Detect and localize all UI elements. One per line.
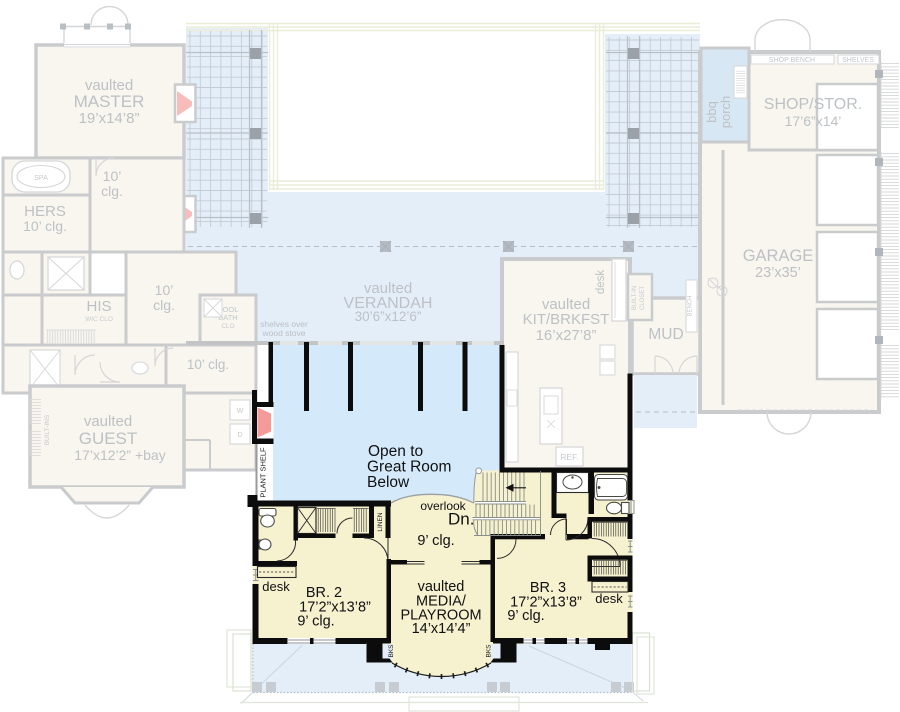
- svg-text:SPA: SPA: [34, 175, 48, 182]
- svg-text:KIT/BRKFST: KIT/BRKFST: [523, 311, 610, 328]
- svg-text:BKS: BKS: [388, 644, 395, 658]
- svg-text:10’ clg.: 10’ clg.: [187, 357, 229, 372]
- svg-text:desk: desk: [595, 591, 623, 606]
- svg-text:10’ clg.: 10’ clg.: [23, 218, 67, 234]
- svg-text:BUILT-INS: BUILT-INS: [44, 414, 51, 445]
- svg-text:MASTER: MASTER: [74, 92, 145, 111]
- svg-text:WIC CLO: WIC CLO: [85, 316, 113, 323]
- svg-text:SHOP BENCH: SHOP BENCH: [769, 57, 815, 64]
- svg-text:bbq: bbq: [704, 101, 719, 123]
- svg-text:wood stove: wood stove: [262, 328, 306, 338]
- svg-text:HIS: HIS: [86, 298, 111, 315]
- svg-text:Below: Below: [367, 474, 410, 491]
- svg-text:REF.: REF.: [560, 452, 578, 462]
- svg-text:17’x12’2” +bay: 17’x12’2” +bay: [74, 447, 165, 463]
- svg-text:BUILT-IN: BUILT-IN: [632, 286, 638, 310]
- svg-text:Great Room: Great Room: [367, 459, 451, 476]
- svg-text:9’ clg.: 9’ clg.: [507, 608, 544, 624]
- svg-text:LINEN: LINEN: [377, 512, 384, 531]
- svg-text:CLOSET: CLOSET: [640, 286, 646, 310]
- svg-text:17’6”x14’: 17’6”x14’: [785, 113, 842, 129]
- svg-text:14’x14’4”: 14’x14’4”: [412, 621, 471, 637]
- svg-text:porch: porch: [718, 96, 733, 129]
- svg-text:30’6”x12’6”: 30’6”x12’6”: [355, 309, 422, 324]
- svg-text:vaulted: vaulted: [84, 413, 132, 430]
- svg-text:CLO: CLO: [221, 323, 234, 330]
- svg-text:23’x35’: 23’x35’: [755, 265, 801, 281]
- svg-text:10’: 10’: [103, 168, 122, 184]
- svg-text:W: W: [237, 408, 244, 415]
- svg-text:BENCH: BENCH: [688, 295, 694, 316]
- svg-text:desk: desk: [595, 270, 607, 295]
- svg-text:16’x27’8”: 16’x27’8”: [536, 327, 597, 344]
- svg-text:D: D: [237, 432, 242, 439]
- svg-text:clg.: clg.: [153, 297, 175, 313]
- svg-text:Open to: Open to: [368, 443, 423, 460]
- svg-text:BKS: BKS: [486, 644, 493, 658]
- svg-text:Dn.: Dn.: [448, 510, 474, 529]
- svg-text:SHELVES: SHELVES: [842, 57, 874, 64]
- svg-text:SHOP/STOR.: SHOP/STOR.: [764, 96, 862, 113]
- svg-text:MUD: MUD: [648, 326, 683, 343]
- svg-text:clg.: clg.: [101, 183, 123, 199]
- svg-text:9’ clg.: 9’ clg.: [417, 533, 454, 549]
- svg-text:PLANT SHELF: PLANT SHELF: [259, 447, 268, 498]
- svg-text:desk: desk: [262, 579, 290, 594]
- svg-text:GUEST: GUEST: [79, 429, 138, 448]
- svg-text:19’x14’8”: 19’x14’8”: [79, 110, 140, 127]
- svg-text:GARAGE: GARAGE: [743, 247, 814, 265]
- svg-text:10’: 10’: [155, 282, 174, 298]
- svg-text:9’ clg.: 9’ clg.: [297, 614, 334, 630]
